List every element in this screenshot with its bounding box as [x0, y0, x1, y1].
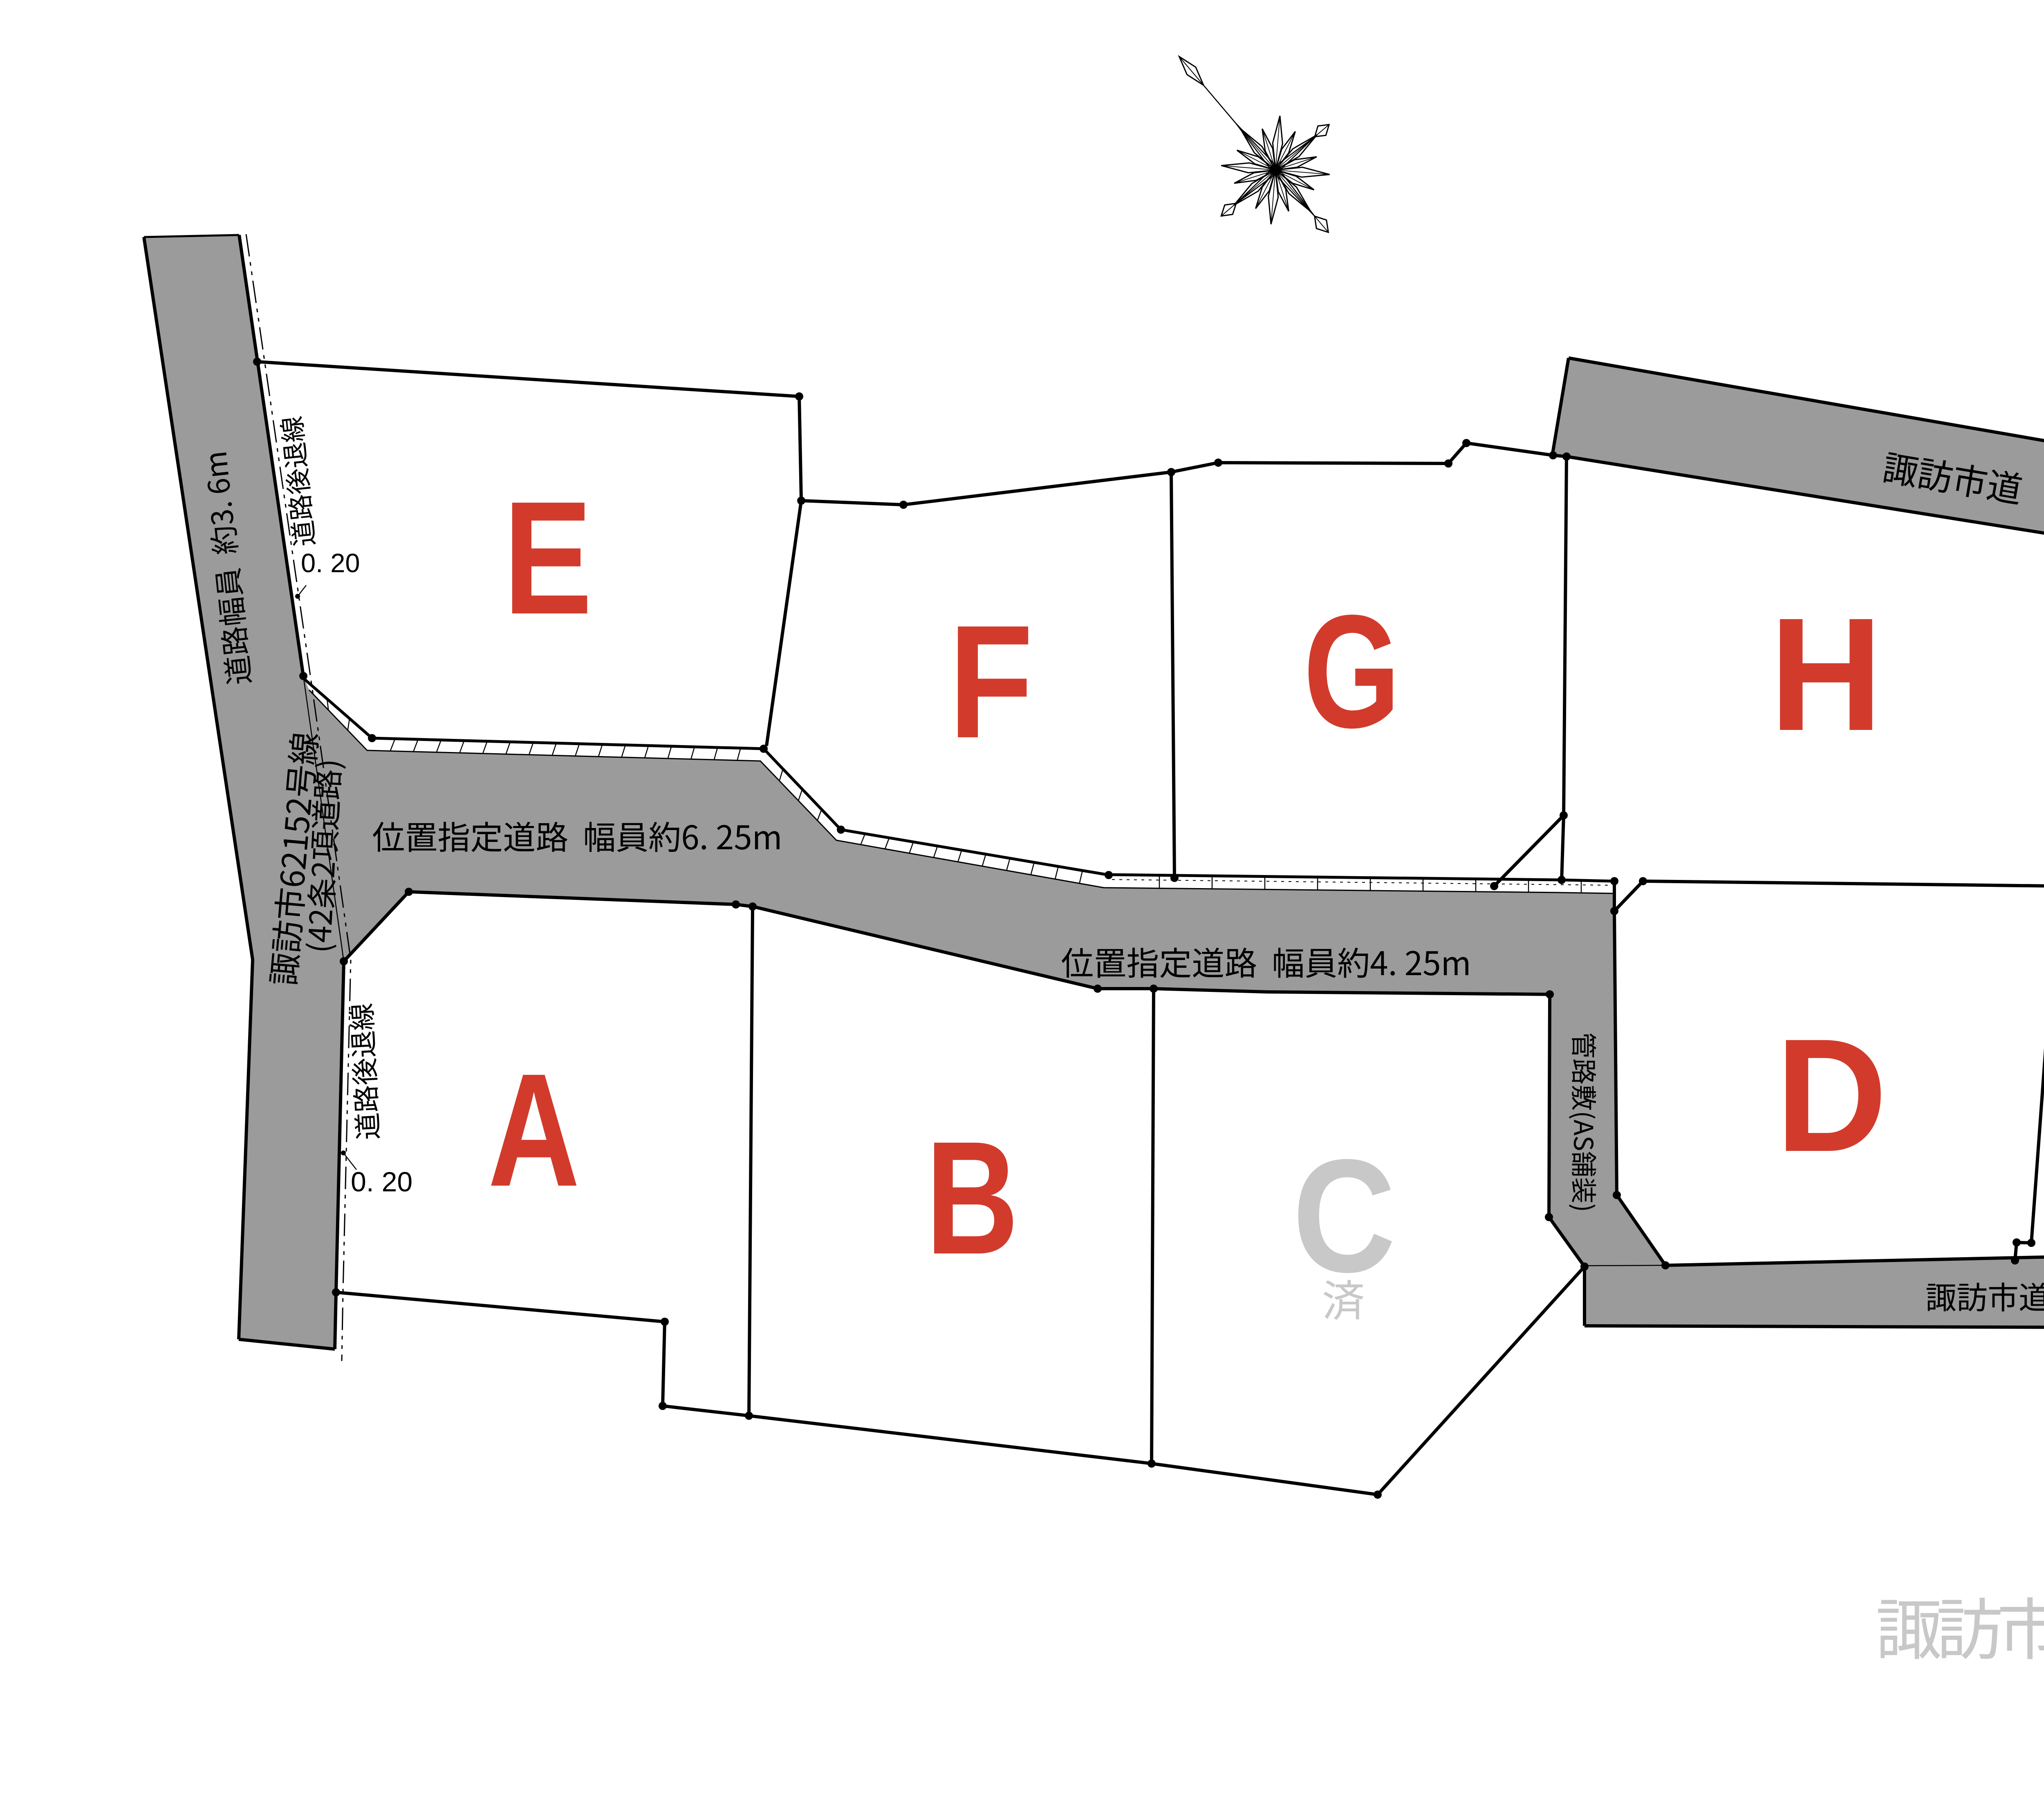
svg-text:H: H [1770, 584, 1883, 764]
svg-text:A: A [488, 1040, 580, 1220]
svg-text:0. 20: 0. 20 [351, 1166, 412, 1197]
svg-text:E: E [503, 468, 592, 648]
svg-text:F: F [949, 592, 1033, 772]
svg-text:D: D [1776, 1005, 1887, 1185]
svg-text:B: B [926, 1108, 1019, 1288]
svg-text:C: C [1293, 1126, 1396, 1306]
svg-text:G: G [1304, 582, 1401, 761]
svg-text:0. 20: 0. 20 [301, 548, 360, 578]
